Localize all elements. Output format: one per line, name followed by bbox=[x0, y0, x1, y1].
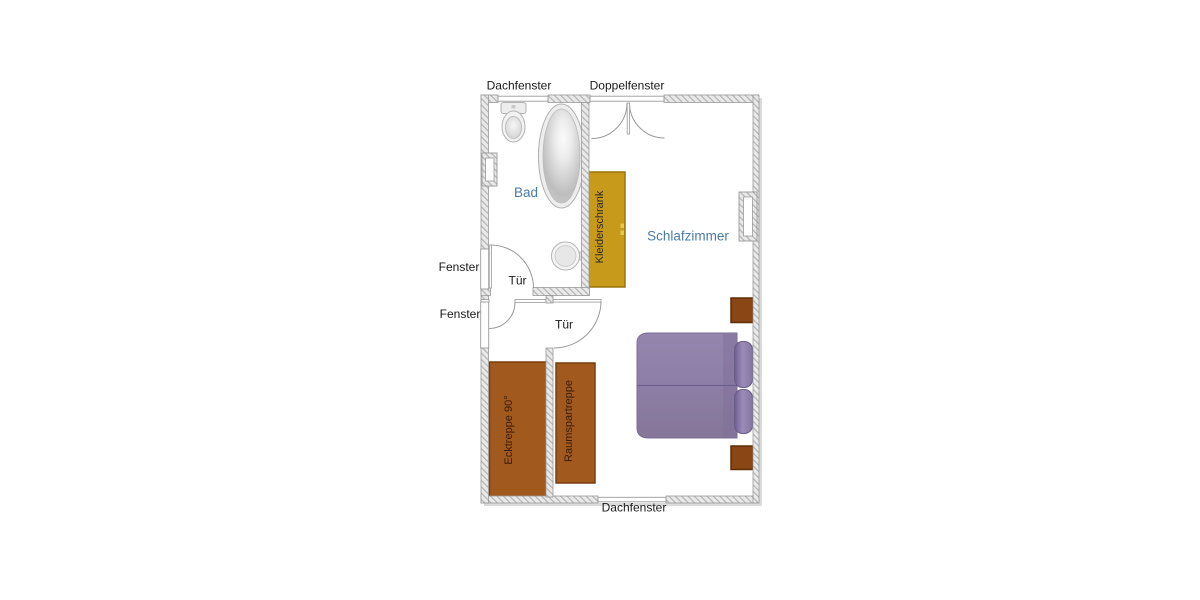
wall-bottom bbox=[481, 496, 598, 503]
wall-top bbox=[664, 95, 757, 103]
bed-pillow bbox=[735, 342, 753, 388]
bed-pillow bbox=[735, 390, 753, 434]
label-room-bad: Bad bbox=[514, 185, 538, 200]
label-fenster-upper: Fenster bbox=[439, 260, 480, 274]
wardrobe-handle bbox=[621, 231, 625, 236]
bed bbox=[637, 333, 753, 438]
label-tuer-bad: Tür bbox=[509, 274, 527, 288]
label-tuer-hall: Tür bbox=[555, 318, 573, 332]
toilet-flush-button bbox=[512, 105, 516, 109]
hall-door-leaf bbox=[553, 300, 601, 303]
wall-bath-bottom bbox=[533, 288, 590, 296]
roof-window-top bbox=[498, 96, 548, 101]
wall-right bbox=[753, 95, 759, 503]
label-raumspartreppe: Raumspartreppe bbox=[563, 380, 575, 462]
double-window-opening bbox=[590, 96, 664, 101]
label-dachfenster-top: Dachfenster bbox=[487, 79, 552, 93]
bath-door-leaf bbox=[489, 245, 491, 288]
label-dachfenster-bottom: Dachfenster bbox=[602, 501, 667, 515]
floor-plan-canvas: Dachfenster Doppelfenster Fenster Fenste… bbox=[0, 0, 1200, 600]
label-doppelfenster: Doppelfenster bbox=[590, 79, 665, 93]
space-saver-staircase bbox=[556, 363, 595, 483]
wall-stair-right bbox=[546, 348, 553, 497]
nightstand-bottom bbox=[731, 446, 753, 470]
window-left-upper bbox=[481, 249, 489, 289]
label-room-schlafzimmer: Schlafzimmer bbox=[647, 229, 729, 244]
nightstand-top bbox=[731, 298, 753, 323]
label-ecktreppe: Ecktreppe 90° bbox=[503, 395, 515, 464]
corner-staircase bbox=[490, 362, 548, 498]
wall-top bbox=[548, 95, 590, 103]
wall-landing bbox=[515, 300, 546, 303]
label-kleiderschrank: Kleiderschrank bbox=[594, 190, 606, 263]
floor-plan-drawing: Dachfenster Doppelfenster Fenster Fenste… bbox=[0, 0, 1200, 600]
label-fenster-lower: Fenster bbox=[440, 307, 481, 321]
french-door-leaves bbox=[627, 103, 629, 134]
wall-bottom bbox=[666, 496, 757, 503]
toilet bbox=[501, 103, 526, 143]
wardrobe-handle bbox=[621, 224, 625, 229]
bathtub bbox=[539, 104, 585, 208]
window-left-lower bbox=[481, 302, 489, 348]
wall-stair-right bbox=[546, 296, 553, 304]
wall-bath-right bbox=[582, 103, 590, 296]
